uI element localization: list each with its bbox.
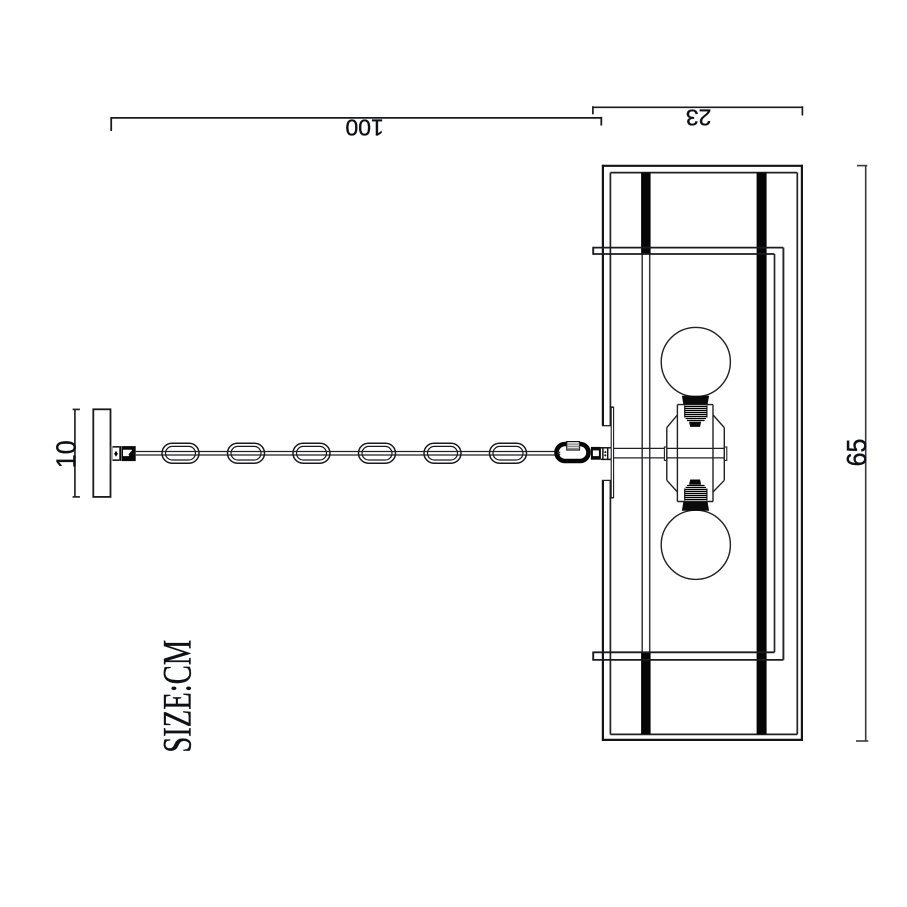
svg-text:SIZE:CM: SIZE:CM	[155, 640, 200, 753]
svg-text:100: 100	[345, 115, 383, 141]
svg-text:23: 23	[686, 104, 712, 130]
svg-text:10: 10	[50, 440, 82, 468]
svg-text:65: 65	[841, 439, 873, 467]
